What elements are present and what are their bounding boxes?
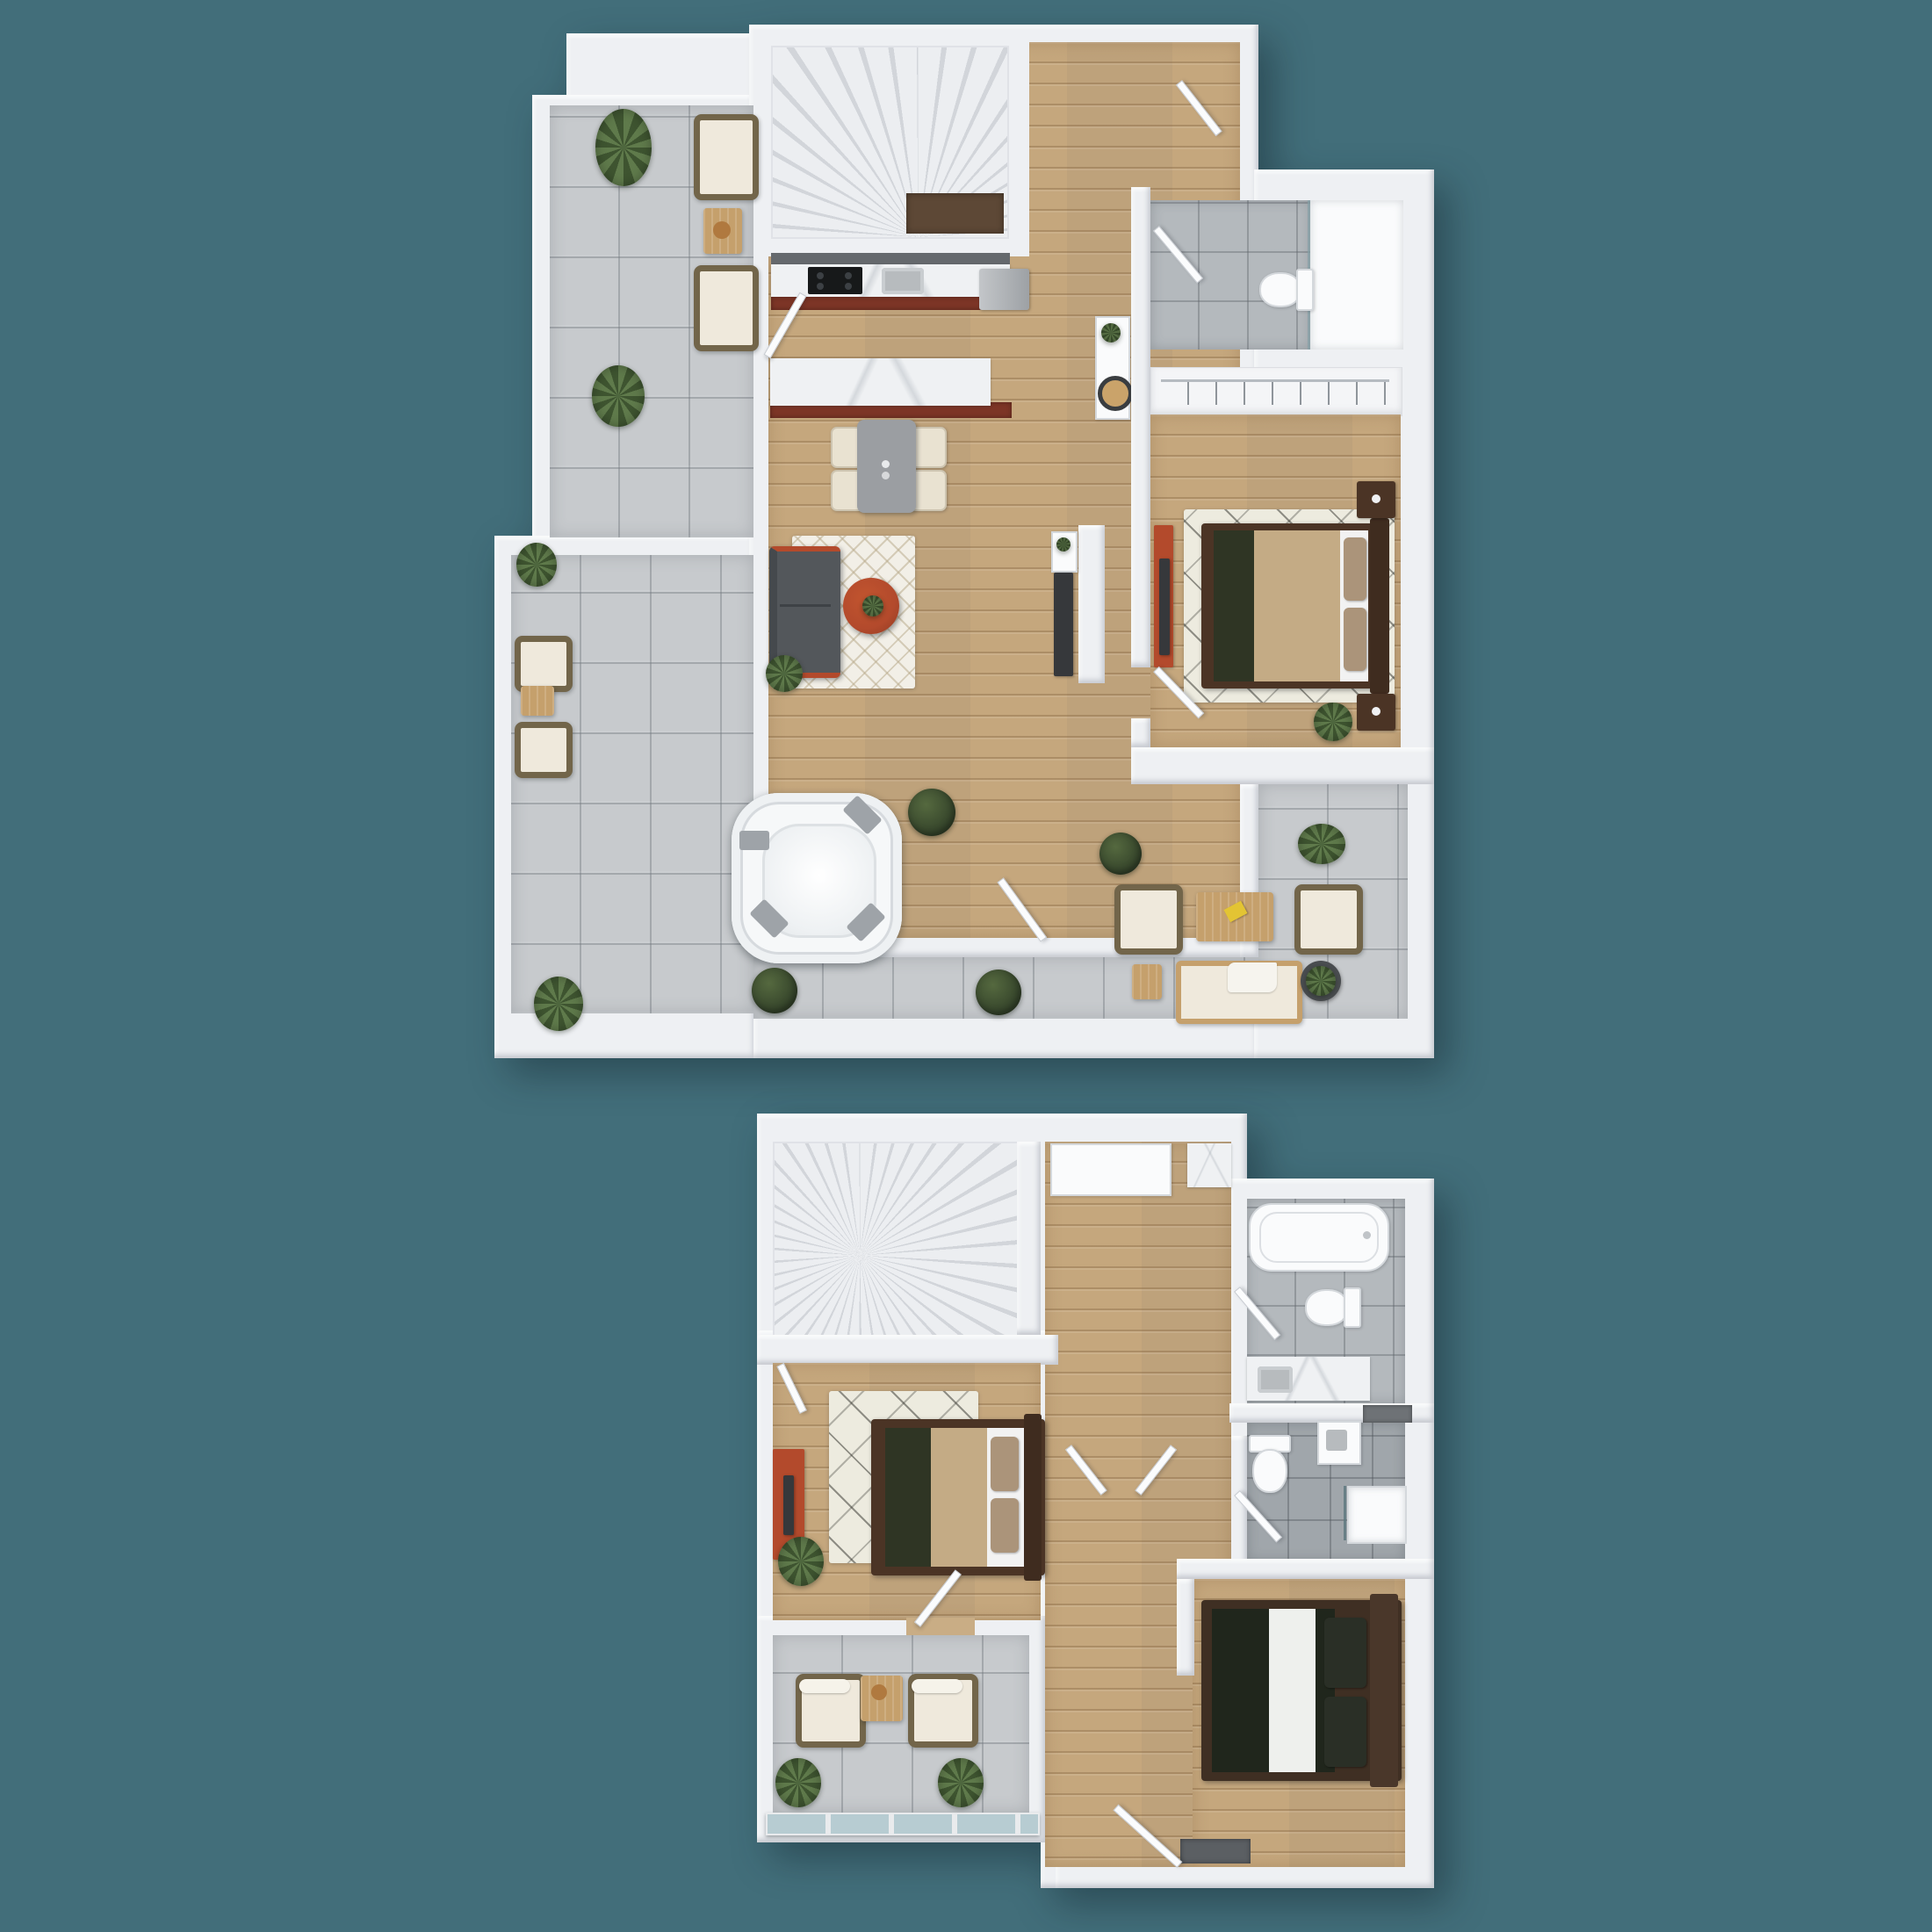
balcony-plant — [938, 1758, 984, 1807]
hall-wardrobe — [1050, 1143, 1171, 1196]
wall-niche — [1363, 1405, 1412, 1423]
winder-staircase — [773, 1142, 1020, 1338]
vanity-sink — [1258, 1366, 1293, 1393]
master-headboard — [1024, 1414, 1042, 1581]
floor-plan-scene — [0, 0, 1932, 1932]
bed2-headboard — [1370, 1594, 1398, 1787]
bed2-pillow — [1324, 1618, 1366, 1688]
toilet-bowl — [1305, 1289, 1349, 1326]
toilet-bowl — [1252, 1449, 1287, 1493]
bathtub-basin — [1259, 1212, 1379, 1263]
master-bed-blanket — [931, 1428, 987, 1567]
master-tv — [783, 1475, 794, 1535]
shower-glass — [1344, 1486, 1346, 1540]
toilet-tank — [1344, 1287, 1361, 1328]
bed2-runner — [1269, 1609, 1316, 1772]
balcony-plant — [775, 1758, 821, 1807]
bathtub-drain — [1363, 1231, 1371, 1239]
stair-wall — [1017, 1142, 1041, 1335]
master-pillow — [991, 1498, 1019, 1553]
bed2-pillow — [1324, 1697, 1366, 1767]
master-top-wall — [757, 1335, 1058, 1365]
lower-floor-plan — [0, 0, 1932, 1932]
doormat — [1180, 1839, 1251, 1864]
hall-counter — [1187, 1143, 1231, 1187]
bedroom2-top-wall — [1177, 1559, 1434, 1579]
glass-railing — [766, 1813, 1040, 1835]
master-plant — [778, 1537, 824, 1586]
balcony-tray — [871, 1684, 887, 1700]
shower-pan — [1347, 1486, 1407, 1544]
master-bed-runner — [885, 1428, 931, 1567]
chair-bolster — [912, 1679, 962, 1693]
master-pillow — [991, 1437, 1019, 1491]
bedroom2-wall-stub — [1177, 1579, 1194, 1676]
vanity-sink — [1326, 1430, 1347, 1451]
chair-bolster — [799, 1679, 850, 1693]
